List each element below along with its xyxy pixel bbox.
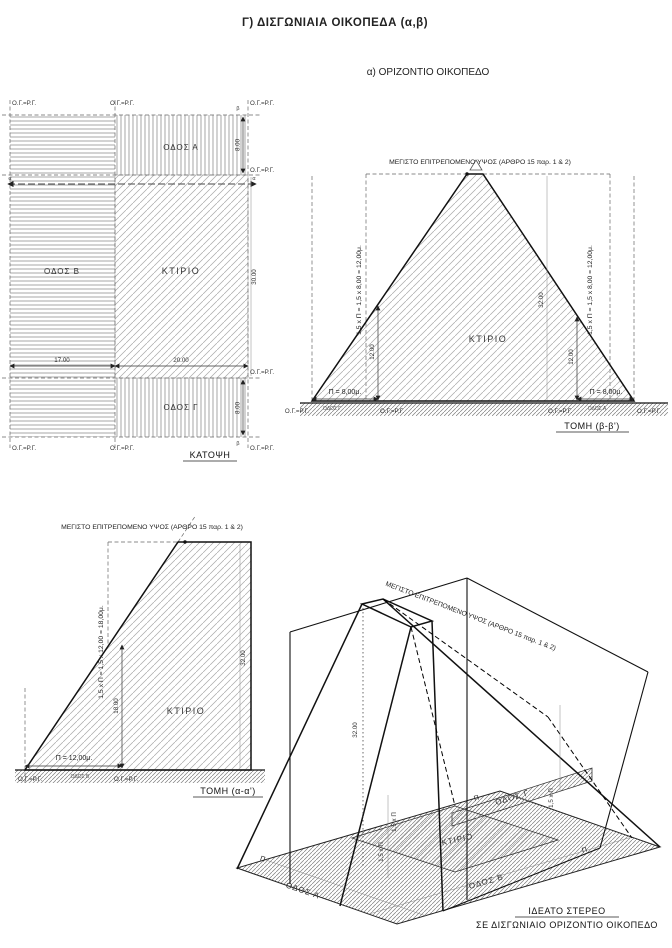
boundary-label: Ο.Γ.=Ρ.Γ. [114,776,138,783]
plan-road-b-area [10,115,115,437]
bb-road-a-label: ΟΔΟΣ Α [588,406,607,412]
plan-dim-right: 20.00 [173,357,189,364]
boundary-label: Ο.Γ.=Ρ.Γ. [250,167,274,174]
aa-caption: ΤΟΜΗ (α-α') [200,786,255,796]
plan-caption: ΚΑΤΟΨΗ [190,450,231,460]
boundary-label: Ο.Γ.=Ρ.Γ. [250,445,274,452]
axon-max-height-label: ΜΕΓΙΣΤΟ ΕΠΙΤΡΕΠΟΜΕΝΟ ΥΨΟΣ (ΑΡΘΡΟ 15 παρ.… [384,581,556,653]
aa-envelope [25,542,251,770]
diagram-canvas: Γ) ΔΙΣΓΩΝΙΑΙΑ ΟΙΚΟΠΕΔΑ (α,β) α) ΟΡΙΖΟΝΤΙ… [0,0,672,948]
axon-pi15-label-2: 1,5 x Π [391,812,398,832]
plan-section-marker-beta-top: β [236,106,239,112]
boundary-label: Ο.Γ.=Ρ.Γ. [12,445,36,452]
aa-road-b-label: ΟΔΟΣ Β [71,774,90,780]
bb-caption: ΤΟΜΗ (β-β') [564,421,619,431]
plan-dim-road-a: 8.00 [235,138,242,151]
boundary-label: Ο.Γ.=Ρ.Γ. [18,776,42,783]
plan-dim-road-c: 8.00 [235,401,242,414]
plan-dim-depth: 30.00 [251,269,258,285]
boundary-label: Ο.Γ.=Ρ.Γ. [380,408,404,415]
bb-building-label: ΚΤΙΡΙΟ [469,334,508,344]
plan-road-c-label: ΟΔΟΣ Γ [163,403,198,412]
page-subtitle: α) ΟΡΙΖΟΝΤΙΟ ΟΙΚΟΠΕΔΟ [367,67,490,78]
boundary-label: Ο.Γ.=Ρ.Γ. [110,100,134,107]
axon-caption-line2: ΣΕ ΔΙΣΓΩΝΙΑΙΟ ΟΡΙΖΟΝΤΙΟ ΟΙΚΟΠΕΔΟ [476,920,658,930]
section-aa: 32.00 18.00 1,5 x Π = 1,5 x 12,00 = 18,0… [15,515,265,797]
bb-left-inner-height: 12.00 [369,344,376,360]
bb-ground-hatch [300,403,668,416]
bb-right-formula: 1,5 x Π = 1,5 x 8,00 = 12,00μ. [587,245,594,335]
plan-dim-left: 17.00 [54,357,70,364]
axon-caption-line1: ΙΔΕΑΤΟ ΣΤΕΡΕΟ [528,906,605,916]
boundary-label: Ο.Γ.=Ρ.Γ. [110,445,134,452]
plan-section-marker-beta-bottom: β [236,441,239,447]
bb-right-inner-height: 12.00 [568,349,575,365]
boundary-label: Ο.Γ.=Ρ.Γ. [12,100,36,107]
aa-total-height: 32.00 [240,650,247,666]
axon-pi15-label-1: 1,5 x Π [378,842,385,862]
bb-road-c-label: ΟΔΟΣ Γ [323,406,341,412]
plan-section-marker-alpha-right: α [252,176,256,182]
boundary-label: Ο.Γ.=Ρ.Γ. [250,100,274,107]
plan-road-b-label: ΟΔΟΣ Β [44,267,80,276]
boundary-label: Ο.Γ.=Ρ.Γ. [250,369,274,376]
bb-left-p-label: Π = 8,00μ. [329,389,362,396]
plan-road-a-label: ΟΔΟΣ Α [163,143,199,152]
plan-building-label: ΚΤΙΡΙΟ [162,266,201,276]
boundary-label: Ο.Γ.=Ρ.Γ. [637,408,661,415]
aa-max-height-label: ΜΕΓΙΣΤΟ ΕΠΙΤΡΕΠΟΜΕΝΟ ΥΨΟΣ (ΑΡΘΡΟ 15 παρ.… [61,524,243,531]
aa-building-label: ΚΤΙΡΙΟ [167,706,206,716]
bb-apex-point [465,172,468,175]
bb-total-height: 32.00 [538,292,545,308]
axon-pi-label-c: Π [473,794,480,802]
aa-apex-point [183,540,186,543]
plan-view: α α β β 8.00 8.00 30.00 17.00 20.00 Ο.Γ.… [2,100,274,461]
section-bb: 32.00 12.00 1,5 x Π = 1,5 x 8,00 = 12,00… [285,159,668,432]
aa-p-label: Π = 12,00μ. [56,755,93,762]
axon-pi15-label-3: 1,5 x Π [548,788,555,808]
page-title: Γ) ΔΙΣΓΩΝΙΑΙΑ ΟΙΚΟΠΕΔΑ (α,β) [242,17,428,29]
bb-max-height-label: ΜΕΓΙΣΤΟ ΕΠΙΤΡΕΠΟΜΕΝΟ ΥΨΟΣ (ΑΡΘΡΟ 15 παρ.… [389,159,571,166]
bb-right-p-label: Π = 8,00μ. [590,389,623,396]
bb-left-formula: 1,5 x Π = 1,5 x 8,00 = 12,00μ. [356,245,363,335]
axon-total-height: 32.00 [352,722,359,738]
drawing-sheet: Γ) ΔΙΣΓΩΝΙΑΙΑ ΟΙΚΟΠΕΔΑ (α,β) α) ΟΡΙΖΟΝΤΙ… [0,0,672,948]
axonometric: 32.00 ΜΕΓΙΣΤΟ ΕΠΙΤΡΕΠΟΜΕΝΟ ΥΨΟΣ (ΑΡΘΡΟ 1… [237,578,660,930]
boundary-label: Ο.Γ.=Ρ.Γ. [285,408,309,415]
boundary-label: Ο.Γ.=Ρ.Γ. [548,408,572,415]
plan-building-area [115,175,248,378]
aa-formula: 1,5 x Π = 1,5 x 12,00 = 18,00μ. [98,605,105,699]
aa-ground-hatch [15,770,265,783]
aa-inner-height: 18.00 [113,698,120,714]
